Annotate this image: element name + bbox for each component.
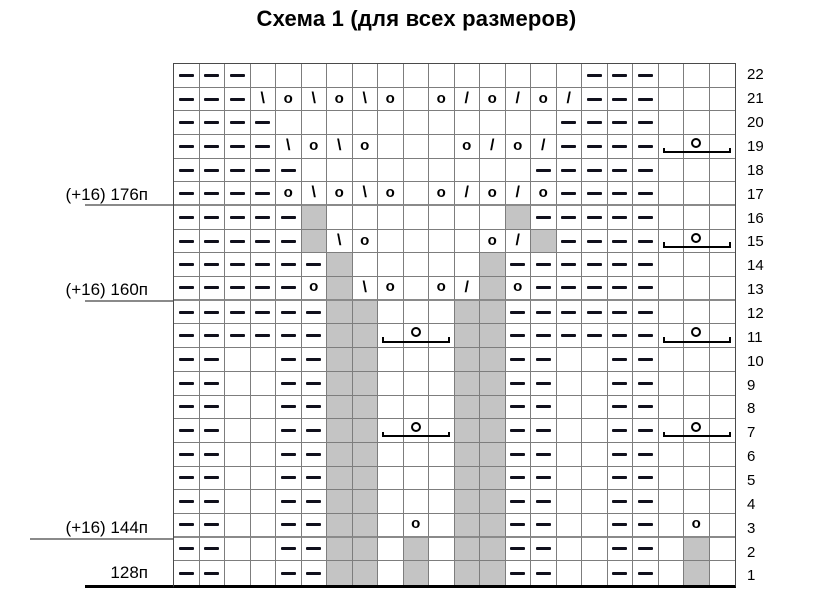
- grid-cell-r12-c15: [531, 301, 557, 325]
- purl-dash-icon: [230, 121, 245, 124]
- grid-cell-r9-c1: [174, 372, 200, 396]
- purl-dash-icon: [230, 98, 245, 101]
- row-number-5: 5: [747, 469, 781, 493]
- purl-dash-icon: [612, 453, 627, 456]
- grid-cell-r8-c9: [378, 396, 404, 420]
- purl-dash-icon: [179, 192, 194, 195]
- row-number-18: 18: [747, 158, 781, 182]
- purl-dash-icon: [510, 358, 525, 361]
- purl-dash-icon: [587, 169, 602, 172]
- grid-cell-r3-c4: [251, 514, 277, 538]
- stitch-count-line-144: [30, 538, 173, 540]
- purl-dash-icon: [179, 169, 194, 172]
- grid-cell-r2-c17: [582, 538, 608, 562]
- yarn-over-icon: o: [411, 516, 420, 531]
- row-number-10: 10: [747, 349, 781, 373]
- grid-cell-r3-c16: [557, 514, 583, 538]
- purl-dash-icon: [255, 216, 270, 219]
- grid-cell-r6-c12: [455, 443, 481, 467]
- purl-dash-icon: [612, 572, 627, 575]
- grid-cell-r15-c22: [710, 230, 736, 254]
- grid-cell-r9-c11: [429, 372, 455, 396]
- grid-cell-r19-c5: \: [276, 135, 302, 159]
- row-number-8: 8: [747, 397, 781, 421]
- purl-dash-icon: [204, 429, 219, 432]
- grid-cell-r9-c8: [353, 372, 379, 396]
- grid-cell-r10-c2: [200, 348, 226, 372]
- grid-cell-r11-c11: [429, 324, 455, 348]
- purl-dash-icon: [306, 358, 321, 361]
- grid-cell-r14-c15: [531, 253, 557, 277]
- purl-dash-icon: [587, 286, 602, 289]
- grid-cell-r6-c7: [327, 443, 353, 467]
- grid-cell-r20-c12: [455, 111, 481, 135]
- grid-cell-r10-c9: [378, 348, 404, 372]
- purl-dash-icon: [612, 263, 627, 266]
- purl-dash-icon: [204, 405, 219, 408]
- grid-cell-r17-c19: [633, 182, 659, 206]
- grid-cell-r15-c4: [251, 230, 277, 254]
- purl-dash-icon: [230, 169, 245, 172]
- grid-cell-r9-c20: [659, 372, 685, 396]
- grid-cell-r7-c16: [557, 419, 583, 443]
- grid-cell-r10-c19: [633, 348, 659, 372]
- grid-cell-r18-c5: [276, 159, 302, 183]
- grid-cell-r6-c4: [251, 443, 277, 467]
- purl-dash-icon: [281, 382, 296, 385]
- purl-dash-icon: [255, 192, 270, 195]
- purl-dash-icon: [561, 169, 576, 172]
- grid-cell-r11-c17: [582, 324, 608, 348]
- stitch-count-line-176: [85, 204, 173, 206]
- purl-dash-icon: [612, 429, 627, 432]
- grid-cell-r19-c21: [684, 135, 710, 159]
- grid-cell-r11-c21: [684, 324, 710, 348]
- grid-cell-r1-c11: [429, 561, 455, 585]
- grid-cell-r1-c18: [608, 561, 634, 585]
- grid-cell-r12-c8: [353, 301, 379, 325]
- right-decrease-icon: /: [516, 91, 520, 107]
- grid-cell-r12-c10: [404, 301, 430, 325]
- grid-cell-r9-c16: [557, 372, 583, 396]
- grid-cell-r3-c2: [200, 514, 226, 538]
- purl-dash-icon: [561, 263, 576, 266]
- grid-cell-r19-c6: o: [302, 135, 328, 159]
- left-decrease-icon: \: [337, 233, 341, 249]
- grid-cell-r12-c22: [710, 301, 736, 325]
- grid-cell-r2-c3: [225, 538, 251, 562]
- grid-cell-r18-c9: [378, 159, 404, 183]
- purl-dash-icon: [561, 334, 576, 337]
- grid-cell-r16-c13: [480, 206, 506, 230]
- purl-dash-icon: [638, 523, 653, 526]
- purl-dash-icon: [638, 476, 653, 479]
- purl-dash-icon: [204, 240, 219, 243]
- grid-cell-r3-c9: [378, 514, 404, 538]
- purl-dash-icon: [587, 240, 602, 243]
- purl-dash-icon: [638, 382, 653, 385]
- purl-dash-icon: [638, 429, 653, 432]
- grid-cell-r15-c14: /: [506, 230, 532, 254]
- grid-cell-r18-c1: [174, 159, 200, 183]
- grid-cell-r1-c17: [582, 561, 608, 585]
- right-decrease-icon: /: [516, 233, 520, 249]
- grid-cell-r14-c6: [302, 253, 328, 277]
- grid-cell-r7-c15: [531, 419, 557, 443]
- grid-cell-r21-c5: o: [276, 88, 302, 112]
- grid-cell-r22-c11: [429, 64, 455, 88]
- purl-dash-icon: [612, 74, 627, 77]
- grid-cell-r20-c11: [429, 111, 455, 135]
- purl-dash-icon: [587, 263, 602, 266]
- grid-cell-r1-c3: [225, 561, 251, 585]
- grid-cell-r21-c13: o: [480, 88, 506, 112]
- purl-dash-icon: [255, 263, 270, 266]
- grid-cell-r21-c19: [633, 88, 659, 112]
- purl-dash-icon: [281, 216, 296, 219]
- purl-dash-icon: [306, 405, 321, 408]
- row-number-9: 9: [747, 373, 781, 397]
- grid-cell-r17-c20: [659, 182, 685, 206]
- grid-cell-r14-c5: [276, 253, 302, 277]
- row-number-15: 15: [747, 230, 781, 254]
- grid-cell-r11-c2: [200, 324, 226, 348]
- grid-cell-r20-c1: [174, 111, 200, 135]
- grid-cell-r7-c17: [582, 419, 608, 443]
- purl-dash-icon: [536, 572, 551, 575]
- grid-cell-r16-c8: [353, 206, 379, 230]
- grid-cell-r21-c4: \: [251, 88, 277, 112]
- grid-cell-r22-c2: [200, 64, 226, 88]
- grid-cell-r6-c14: [506, 443, 532, 467]
- grid-cell-r6-c18: [608, 443, 634, 467]
- grid-cell-r3-c17: [582, 514, 608, 538]
- grid-cell-r11-c12: [455, 324, 481, 348]
- grid-cell-r22-c13: [480, 64, 506, 88]
- grid-cell-r14-c12: [455, 253, 481, 277]
- row-number-17: 17: [747, 182, 781, 206]
- purl-dash-icon: [510, 476, 525, 479]
- purl-dash-icon: [179, 453, 194, 456]
- grid-cell-r5-c2: [200, 467, 226, 491]
- purl-dash-icon: [204, 286, 219, 289]
- grid-cell-r3-c10: o: [404, 514, 430, 538]
- grid-cell-r14-c7: [327, 253, 353, 277]
- purl-dash-icon: [230, 145, 245, 148]
- purl-dash-icon: [587, 74, 602, 77]
- grid-cell-r4-c5: [276, 490, 302, 514]
- cluster-bracket-icon: [663, 148, 685, 153]
- grid-cell-r2-c19: [633, 538, 659, 562]
- grid-cell-r4-c19: [633, 490, 659, 514]
- purl-dash-icon: [306, 476, 321, 479]
- grid-cell-r21-c17: [582, 88, 608, 112]
- grid-cell-r19-c18: [608, 135, 634, 159]
- grid-cell-r11-c6: [302, 324, 328, 348]
- grid-cell-r4-c7: [327, 490, 353, 514]
- grid-cell-r1-c19: [633, 561, 659, 585]
- grid-cell-r14-c11: [429, 253, 455, 277]
- grid-cell-r8-c19: [633, 396, 659, 420]
- cluster-bracket-icon: [382, 432, 404, 437]
- purl-dash-icon: [179, 405, 194, 408]
- cluster-bracket-icon: [403, 337, 430, 342]
- purl-dash-icon: [561, 240, 576, 243]
- row-number-3: 3: [747, 516, 781, 540]
- yarn-over-icon: o: [360, 138, 369, 153]
- purl-dash-icon: [281, 405, 296, 408]
- purl-dash-icon: [230, 311, 245, 314]
- grid-cell-r16-c22: [710, 206, 736, 230]
- purl-dash-icon: [230, 334, 245, 337]
- purl-dash-icon: [510, 429, 525, 432]
- grid-cell-r18-c11: [429, 159, 455, 183]
- right-decrease-icon: /: [516, 185, 520, 201]
- grid-cell-r9-c18: [608, 372, 634, 396]
- yarn-over-icon: o: [539, 91, 548, 106]
- grid-cell-r10-c16: [557, 348, 583, 372]
- grid-cell-r4-c18: [608, 490, 634, 514]
- grid-cell-r8-c5: [276, 396, 302, 420]
- grid-cell-r7-c7: [327, 419, 353, 443]
- grid-cell-r12-c9: [378, 301, 404, 325]
- grid-cell-r3-c19: [633, 514, 659, 538]
- grid-cell-r11-c8: [353, 324, 379, 348]
- grid-cell-r5-c3: [225, 467, 251, 491]
- grid-cell-r15-c2: [200, 230, 226, 254]
- grid-cell-r2-c1: [174, 538, 200, 562]
- grid-cell-r8-c21: [684, 396, 710, 420]
- grid-cell-r14-c1: [174, 253, 200, 277]
- grid-cell-r3-c14: [506, 514, 532, 538]
- purl-dash-icon: [638, 192, 653, 195]
- grid-cell-r13-c20: [659, 277, 685, 301]
- purl-dash-icon: [612, 311, 627, 314]
- row-number-16: 16: [747, 206, 781, 230]
- row-number-20: 20: [747, 111, 781, 135]
- grid-cell-r19-c13: /: [480, 135, 506, 159]
- grid-cell-r20-c5: [276, 111, 302, 135]
- grid-cell-r17-c8: \: [353, 182, 379, 206]
- grid-cell-r19-c9: [378, 135, 404, 159]
- grid-cell-r6-c22: [710, 443, 736, 467]
- purl-dash-icon: [179, 429, 194, 432]
- row-number-2: 2: [747, 540, 781, 564]
- purl-dash-icon: [179, 523, 194, 526]
- grid-cell-r2-c18: [608, 538, 634, 562]
- purl-dash-icon: [204, 169, 219, 172]
- grid-cell-r5-c6: [302, 467, 328, 491]
- grid-cell-r3-c8: [353, 514, 379, 538]
- grid-cell-r11-c15: [531, 324, 557, 348]
- grid-cell-r4-c2: [200, 490, 226, 514]
- grid-cell-r9-c14: [506, 372, 532, 396]
- grid-cell-r5-c18: [608, 467, 634, 491]
- yarn-over-icon: o: [513, 138, 522, 153]
- yarn-over-icon: o: [488, 185, 497, 200]
- grid-cell-r10-c10: [404, 348, 430, 372]
- grid-cell-r3-c18: [608, 514, 634, 538]
- row-number-column: 22212019181716151413121110987654321: [747, 63, 781, 588]
- grid-cell-r4-c3: [225, 490, 251, 514]
- grid-cell-r1-c8: [353, 561, 379, 585]
- grid-cell-r1-c9: [378, 561, 404, 585]
- purl-dash-icon: [179, 74, 194, 77]
- grid-cell-r19-c10: [404, 135, 430, 159]
- grid-cell-r15-c10: [404, 230, 430, 254]
- purl-dash-icon: [281, 476, 296, 479]
- purl-dash-icon: [204, 500, 219, 503]
- cluster-bracket-icon: [382, 337, 404, 342]
- right-decrease-icon: /: [541, 138, 545, 154]
- grid-cell-r19-c22: [710, 135, 736, 159]
- grid-cell-r21-c3: [225, 88, 251, 112]
- grid-cell-r18-c16: [557, 159, 583, 183]
- grid-cell-r1-c22: [710, 561, 736, 585]
- grid-cell-r12-c14: [506, 301, 532, 325]
- purl-dash-icon: [230, 192, 245, 195]
- grid-cell-r13-c3: [225, 277, 251, 301]
- grid-cell-r21-c10: [404, 88, 430, 112]
- grid-cell-r10-c3: [225, 348, 251, 372]
- cluster-bracket-icon: [709, 432, 732, 437]
- grid-cell-r4-c17: [582, 490, 608, 514]
- purl-dash-icon: [179, 334, 194, 337]
- grid-cell-r14-c8: [353, 253, 379, 277]
- purl-dash-icon: [179, 263, 194, 266]
- purl-dash-icon: [306, 523, 321, 526]
- grid-cell-r4-c21: [684, 490, 710, 514]
- grid-cell-r15-c19: [633, 230, 659, 254]
- cluster-circle-icon: [691, 233, 701, 243]
- grid-cell-r8-c22: [710, 396, 736, 420]
- grid-cell-r12-c13: [480, 301, 506, 325]
- purl-dash-icon: [179, 358, 194, 361]
- grid-cell-r17-c3: [225, 182, 251, 206]
- grid-cell-r11-c14: [506, 324, 532, 348]
- grid-cell-r18-c7: [327, 159, 353, 183]
- yarn-over-icon: o: [335, 91, 344, 106]
- grid-cell-r9-c3: [225, 372, 251, 396]
- stitch-count-label-144: (+16) 144п: [28, 518, 148, 538]
- grid-cell-r1-c14: [506, 561, 532, 585]
- grid-cell-r16-c5: [276, 206, 302, 230]
- grid-cell-r15-c21: [684, 230, 710, 254]
- grid-cell-r16-c15: [531, 206, 557, 230]
- grid-cell-r7-c21: [684, 419, 710, 443]
- grid-cell-r17-c14: /: [506, 182, 532, 206]
- grid-cell-r11-c18: [608, 324, 634, 348]
- grid-cell-r11-c1: [174, 324, 200, 348]
- purl-dash-icon: [510, 500, 525, 503]
- knitting-chart-page: Схема 1 (для всех размеров) \o\o\oo/o/o/…: [0, 0, 833, 603]
- grid-cell-r6-c21: [684, 443, 710, 467]
- grid-cell-r16-c17: [582, 206, 608, 230]
- grid-cell-r13-c18: [608, 277, 634, 301]
- grid-cell-r17-c16: [557, 182, 583, 206]
- purl-dash-icon: [204, 453, 219, 456]
- grid-cell-r6-c10: [404, 443, 430, 467]
- grid-cell-r20-c20: [659, 111, 685, 135]
- grid-cell-r8-c6: [302, 396, 328, 420]
- row-number-19: 19: [747, 135, 781, 159]
- grid-cell-r18-c4: [251, 159, 277, 183]
- grid-cell-r13-c4: [251, 277, 277, 301]
- grid-cell-r20-c4: [251, 111, 277, 135]
- grid-cell-r12-c1: [174, 301, 200, 325]
- grid-cell-r9-c4: [251, 372, 277, 396]
- grid-cell-r9-c19: [633, 372, 659, 396]
- purl-dash-icon: [281, 547, 296, 550]
- purl-dash-icon: [612, 358, 627, 361]
- grid-cell-r22-c22: [710, 64, 736, 88]
- grid-cell-r11-c3: [225, 324, 251, 348]
- purl-dash-icon: [306, 311, 321, 314]
- left-decrease-icon: \: [312, 185, 316, 201]
- grid-cell-r9-c9: [378, 372, 404, 396]
- grid-cell-r15-c1: [174, 230, 200, 254]
- yarn-over-icon: o: [309, 138, 318, 153]
- grid-cell-r13-c13: [480, 277, 506, 301]
- grid-cell-r16-c16: [557, 206, 583, 230]
- purl-dash-icon: [638, 286, 653, 289]
- grid-cell-r6-c17: [582, 443, 608, 467]
- grid-cell-r13-c12: /: [455, 277, 481, 301]
- grid-cell-r13-c17: [582, 277, 608, 301]
- grid-cell-r21-c12: /: [455, 88, 481, 112]
- grid-cell-r4-c16: [557, 490, 583, 514]
- purl-dash-icon: [561, 286, 576, 289]
- grid-cell-r11-c19: [633, 324, 659, 348]
- purl-dash-icon: [612, 500, 627, 503]
- grid-cell-r10-c8: [353, 348, 379, 372]
- grid-cell-r20-c16: [557, 111, 583, 135]
- grid-cell-r21-c6: \: [302, 88, 328, 112]
- grid-cell-r16-c10: [404, 206, 430, 230]
- grid-cell-r22-c8: [353, 64, 379, 88]
- grid-cell-r20-c6: [302, 111, 328, 135]
- grid-cell-r10-c18: [608, 348, 634, 372]
- purl-dash-icon: [306, 500, 321, 503]
- purl-dash-icon: [204, 382, 219, 385]
- grid-cell-r2-c9: [378, 538, 404, 562]
- purl-dash-icon: [204, 192, 219, 195]
- grid-cell-r14-c18: [608, 253, 634, 277]
- yarn-over-icon: o: [386, 185, 395, 200]
- grid-cell-r19-c20: [659, 135, 685, 159]
- cluster-bracket-icon: [683, 337, 710, 342]
- purl-dash-icon: [204, 74, 219, 77]
- grid-cell-r10-c20: [659, 348, 685, 372]
- grid-cell-r6-c20: [659, 443, 685, 467]
- grid-cell-r22-c12: [455, 64, 481, 88]
- grid-cell-r9-c21: [684, 372, 710, 396]
- grid-cell-r3-c6: [302, 514, 328, 538]
- grid-cell-r2-c10: [404, 538, 430, 562]
- grid-cell-r7-c14: [506, 419, 532, 443]
- grid-cell-r10-c12: [455, 348, 481, 372]
- grid-cell-r18-c22: [710, 159, 736, 183]
- purl-dash-icon: [536, 476, 551, 479]
- purl-dash-icon: [587, 121, 602, 124]
- grid-cell-r22-c15: [531, 64, 557, 88]
- grid-cell-r17-c15: o: [531, 182, 557, 206]
- yarn-over-icon: o: [437, 185, 446, 200]
- grid-cell-r7-c2: [200, 419, 226, 443]
- purl-dash-icon: [536, 453, 551, 456]
- grid-cell-r21-c21: [684, 88, 710, 112]
- grid-cell-r13-c5: [276, 277, 302, 301]
